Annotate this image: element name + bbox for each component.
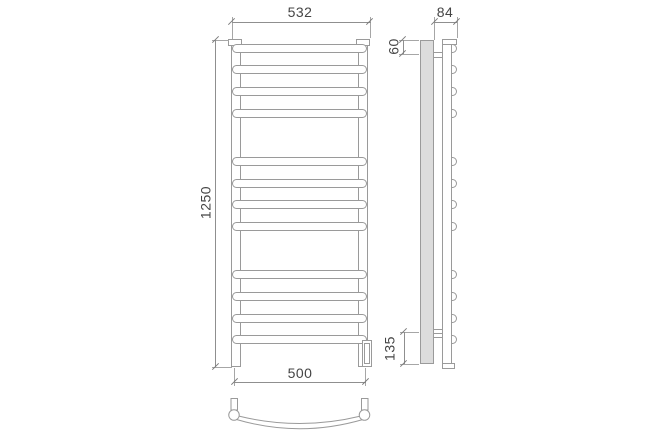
dimension-bottom-mount-offset: 135 [0,0,666,444]
bottom-view-curved-bar [215,393,385,441]
left-tube-section [229,410,240,421]
towel-rail-technical-drawing: 532 1250 500 [0,0,666,444]
right-bracket-stub [362,399,369,411]
curved-bar-arc [237,416,364,429]
right-tube-section [359,410,370,421]
left-bracket-stub [231,399,238,411]
bottom-mount-offset-label: 135 [383,327,398,371]
